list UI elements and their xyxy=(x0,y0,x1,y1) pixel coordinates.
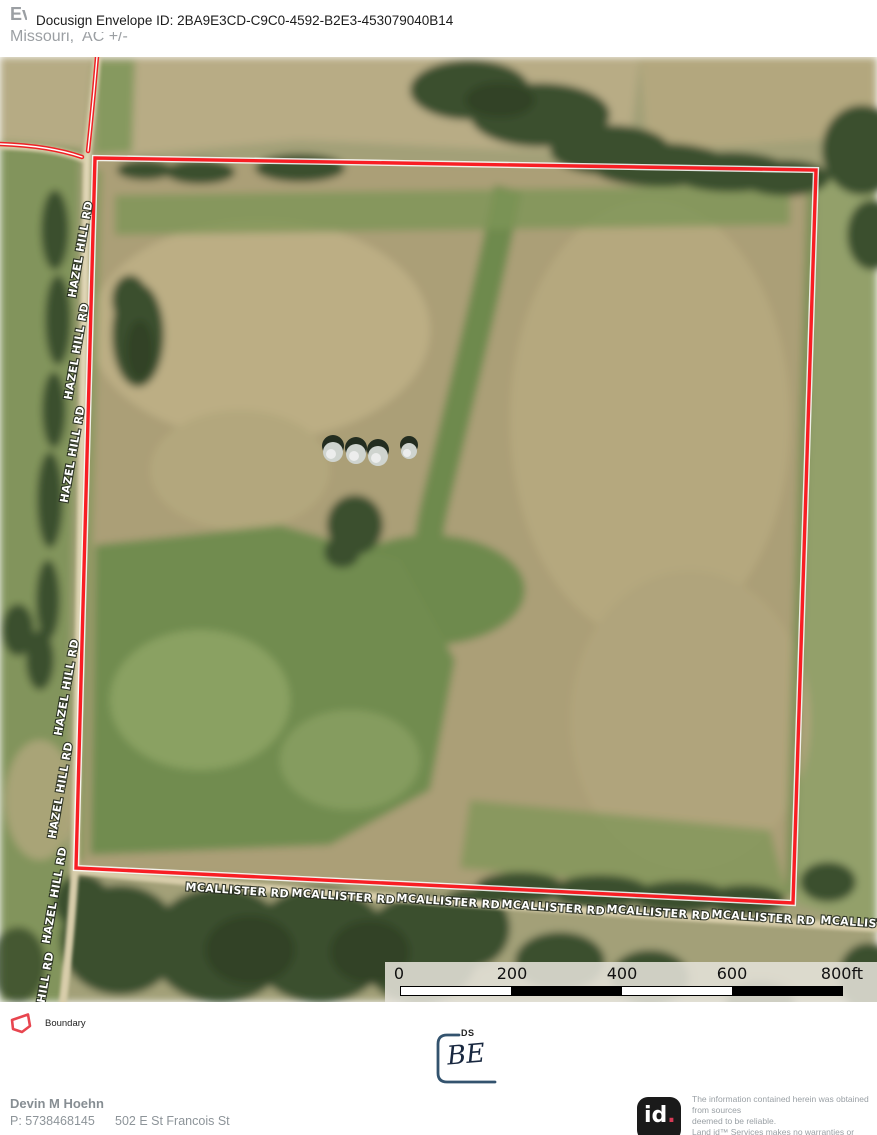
docusign-envelope-id: Docusign Envelope ID: 2BA9E3CD-C9C0-4592… xyxy=(27,10,567,28)
legend: Boundary xyxy=(8,1012,86,1035)
scale-tick: 200 xyxy=(497,964,528,983)
aerial-map-svg: HAZEL HILL RDHAZEL HILL RDHAZEL HILL RDH… xyxy=(0,57,877,1002)
logo-id-text: id xyxy=(644,1103,667,1128)
map-report-page: Evans Docusign Envelope ID: 2BA9E3CD-C9C… xyxy=(0,0,877,1135)
logo-dot: . xyxy=(667,1103,675,1128)
aerial-map: HAZEL HILL RDHAZEL HILL RDHAZEL HILL RDH… xyxy=(0,57,877,1002)
scale-tick: 600 xyxy=(717,964,748,983)
stamp-ds-label: DS xyxy=(461,1028,475,1038)
docusign-envelope-banner: Docusign Envelope ID: 2BA9E3CD-C9C0-4592… xyxy=(27,10,567,32)
scale-bar-segments xyxy=(401,986,843,996)
boundary-legend-icon xyxy=(8,1012,33,1035)
scale-tick: 400 xyxy=(607,964,638,983)
land-id-logo: id. xyxy=(637,1097,681,1135)
disclaimer-text: The information contained herein was obt… xyxy=(692,1094,874,1135)
stamp-initials: BE xyxy=(446,1038,487,1071)
legend-boundary-label: Boundary xyxy=(45,1018,86,1029)
agent-address: 502 E St Francois St xyxy=(115,1114,230,1128)
agent-name: Devin M Hoehn xyxy=(10,1096,104,1111)
scale-bar: 0 200 400 600 800ft xyxy=(385,962,877,1002)
scale-tick: 0 xyxy=(394,964,404,983)
initials-stamp: DS BE xyxy=(433,1028,523,1090)
agent-phone: P: 5738468145 xyxy=(10,1114,95,1128)
terrain-layer xyxy=(0,57,877,1002)
scale-tick: 800ft xyxy=(821,964,863,983)
